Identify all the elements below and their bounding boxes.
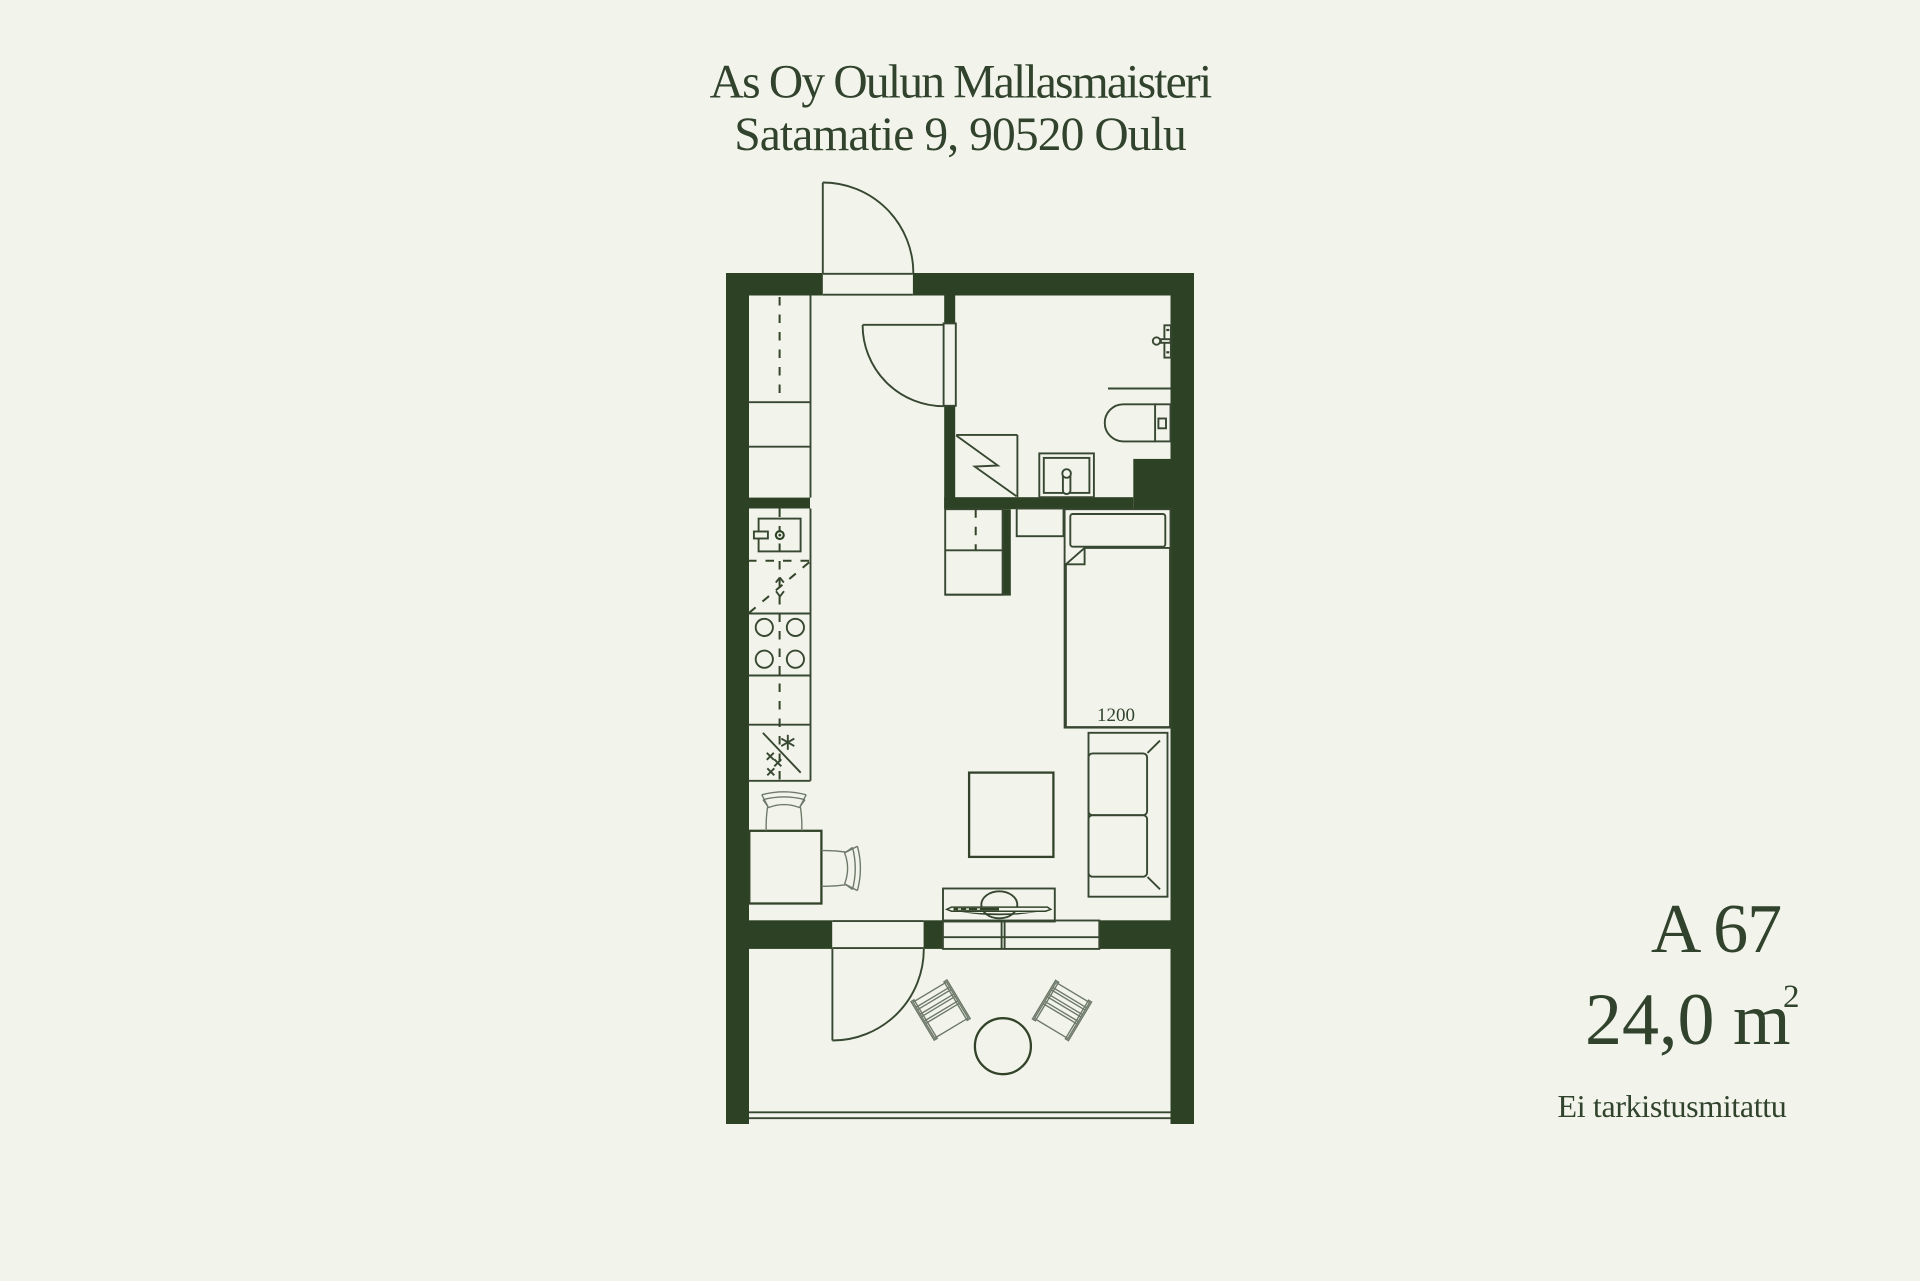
svg-text:Ei tarkistusmitattu: Ei tarkistusmitattu bbox=[1558, 1088, 1787, 1124]
svg-text:Satamatie 9, 90520 Oulu: Satamatie 9, 90520 Oulu bbox=[734, 109, 1186, 161]
svg-text:As Oy Oulun Mallasmaisteri: As Oy Oulun Mallasmaisteri bbox=[710, 57, 1212, 109]
svg-text:24,0 m: 24,0 m bbox=[1585, 979, 1791, 1061]
svg-text:1200: 1200 bbox=[1097, 705, 1135, 726]
svg-text:A 67: A 67 bbox=[1651, 891, 1781, 968]
svg-text:2: 2 bbox=[1783, 979, 1800, 1015]
